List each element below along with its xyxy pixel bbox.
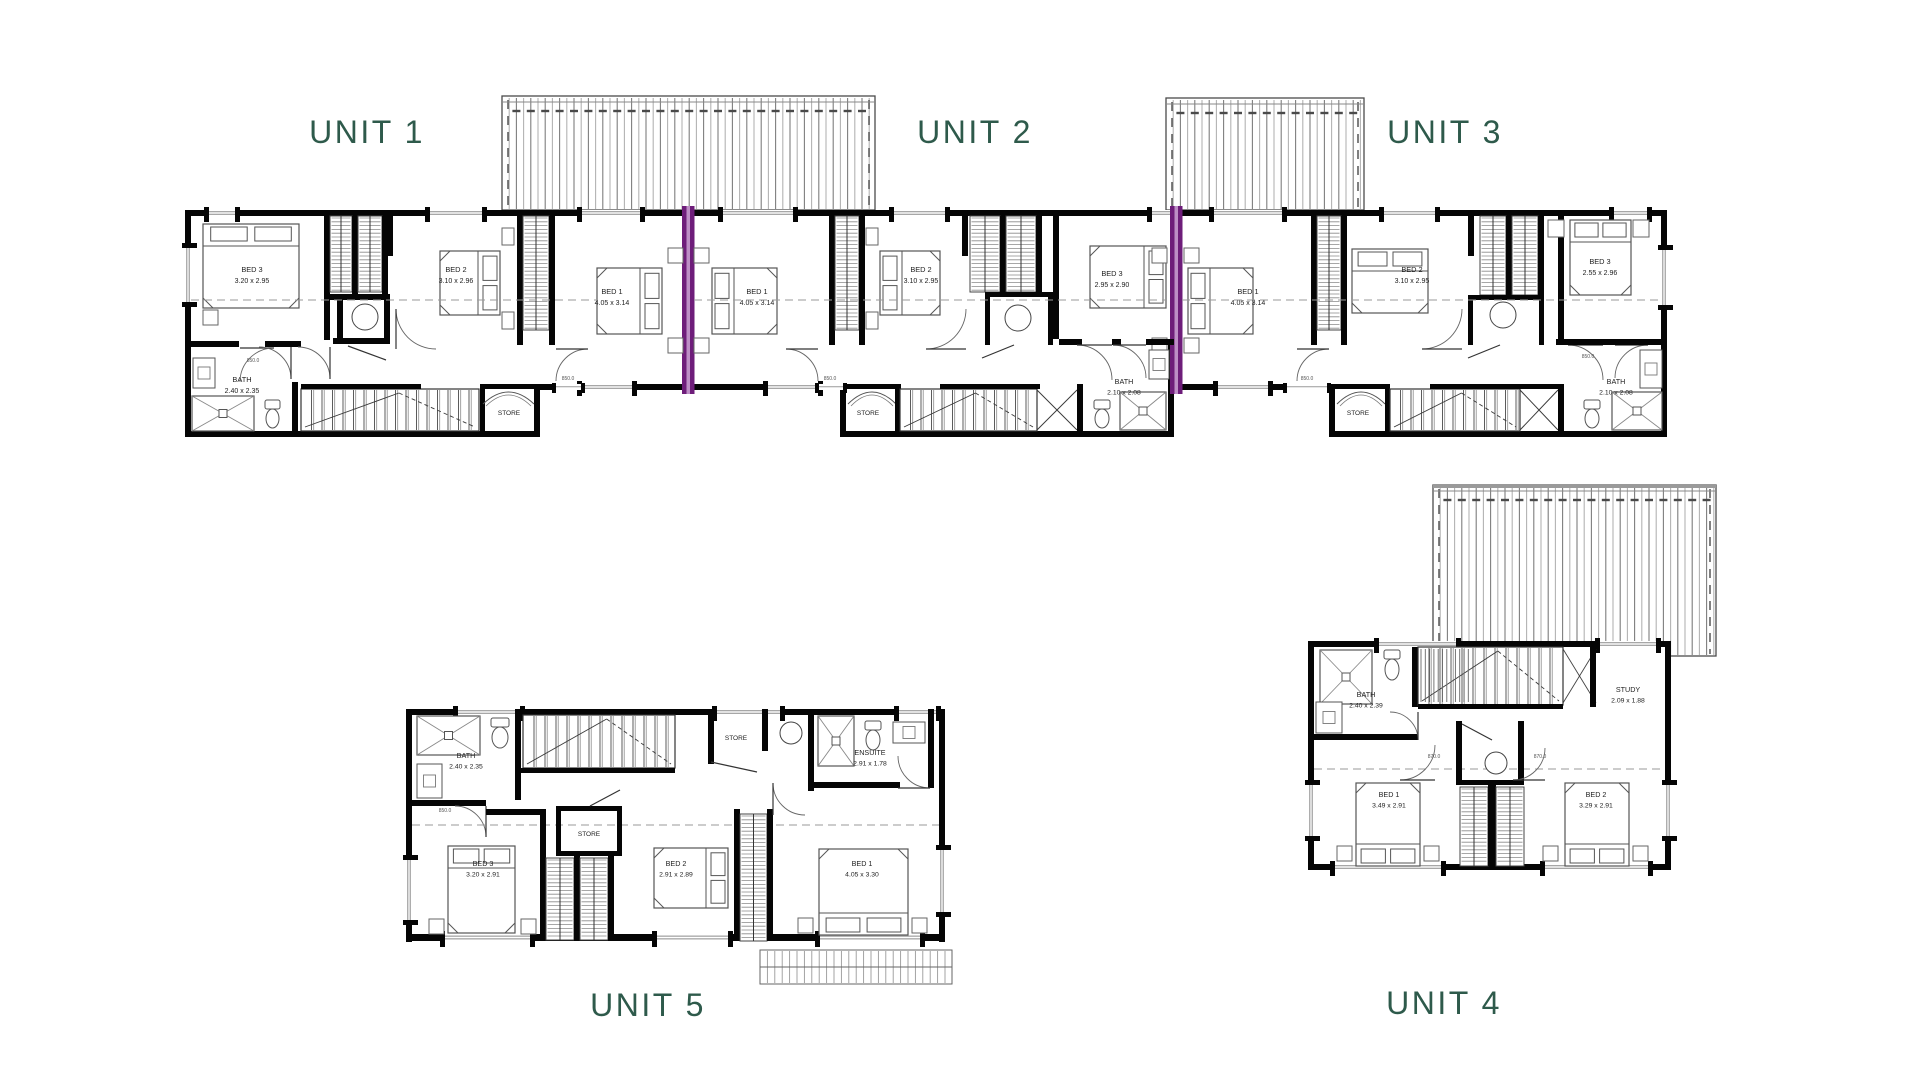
svg-text:BED 1: BED 1 <box>1237 287 1258 296</box>
svg-text:3.20 x 2.95: 3.20 x 2.95 <box>235 278 270 285</box>
svg-text:BED 1: BED 1 <box>852 859 873 868</box>
svg-text:STORE: STORE <box>1347 410 1370 417</box>
svg-text:BED 1: BED 1 <box>746 287 767 296</box>
svg-text:850.0: 850.0 <box>1301 376 1314 382</box>
svg-text:2.10 x 2.08: 2.10 x 2.08 <box>1599 390 1633 397</box>
svg-text:2.09 x 1.88: 2.09 x 1.88 <box>1611 698 1645 705</box>
svg-text:BED 1: BED 1 <box>1379 790 1400 799</box>
svg-text:BED 3: BED 3 <box>1101 269 1122 278</box>
svg-text:BED 2: BED 2 <box>1401 265 1422 274</box>
svg-text:3.10 x 2.96: 3.10 x 2.96 <box>439 278 474 285</box>
svg-text:4.05 x 3.14: 4.05 x 3.14 <box>740 300 775 307</box>
svg-text:UNIT 1: UNIT 1 <box>309 114 425 150</box>
svg-text:850.0: 850.0 <box>824 376 837 382</box>
svg-text:STORE: STORE <box>578 831 601 838</box>
svg-text:850.0: 850.0 <box>1582 354 1595 360</box>
svg-text:870.0: 870.0 <box>1534 754 1547 760</box>
svg-text:2.40 x 2.35: 2.40 x 2.35 <box>225 388 260 395</box>
svg-text:4.05 x 3.14: 4.05 x 3.14 <box>595 300 630 307</box>
svg-text:STORE: STORE <box>498 410 521 417</box>
svg-text:BATH: BATH <box>1607 377 1626 386</box>
svg-text:BED 2: BED 2 <box>1586 790 1607 799</box>
svg-text:BED 2: BED 2 <box>666 859 687 868</box>
svg-text:UNIT 3: UNIT 3 <box>1387 114 1503 150</box>
svg-text:3.10 x 2.95: 3.10 x 2.95 <box>904 278 939 285</box>
svg-text:2.95 x 2.90: 2.95 x 2.90 <box>1095 282 1130 289</box>
svg-text:BATH: BATH <box>232 375 251 384</box>
svg-text:BED 3: BED 3 <box>473 859 494 868</box>
svg-text:BATH: BATH <box>1357 690 1376 699</box>
svg-text:3.20 x 2.91: 3.20 x 2.91 <box>466 872 500 879</box>
svg-text:STUDY: STUDY <box>1616 685 1641 694</box>
svg-text:BED 3: BED 3 <box>1589 257 1610 266</box>
svg-text:BED 2: BED 2 <box>910 265 931 274</box>
svg-text:850.0: 850.0 <box>562 376 575 382</box>
svg-text:ENSUITE: ENSUITE <box>854 748 885 757</box>
svg-text:4.05 x 3.30: 4.05 x 3.30 <box>845 872 879 879</box>
svg-text:UNIT 2: UNIT 2 <box>917 114 1033 150</box>
svg-text:2.40 x 2.39: 2.40 x 2.39 <box>1349 703 1383 710</box>
svg-text:2.91 x 1.78: 2.91 x 1.78 <box>853 761 887 768</box>
svg-text:870.0: 870.0 <box>1428 754 1441 760</box>
svg-text:4.05 x 3.14: 4.05 x 3.14 <box>1231 300 1266 307</box>
svg-text:2.40 x 2.35: 2.40 x 2.35 <box>449 764 483 771</box>
svg-text:2.91 x 2.89: 2.91 x 2.89 <box>659 872 693 879</box>
svg-text:BED 2: BED 2 <box>445 265 466 274</box>
svg-text:850.0: 850.0 <box>439 808 452 814</box>
svg-text:UNIT 5: UNIT 5 <box>590 987 706 1023</box>
svg-text:3.49 x 2.91: 3.49 x 2.91 <box>1372 803 1406 810</box>
svg-text:BED 3: BED 3 <box>241 265 262 274</box>
svg-text:BATH: BATH <box>1115 377 1134 386</box>
svg-text:3.29 x 2.91: 3.29 x 2.91 <box>1579 803 1613 810</box>
svg-text:UNIT 4: UNIT 4 <box>1386 985 1502 1021</box>
svg-text:STORE: STORE <box>725 735 748 742</box>
svg-text:STORE: STORE <box>857 410 880 417</box>
svg-text:2.55 x 2.96: 2.55 x 2.96 <box>1583 270 1618 277</box>
svg-text:BATH: BATH <box>457 751 476 760</box>
svg-text:2.10 x 2.08: 2.10 x 2.08 <box>1107 390 1141 397</box>
svg-text:BED 1: BED 1 <box>601 287 622 296</box>
svg-text:850.0: 850.0 <box>247 358 260 364</box>
svg-text:3.10 x 2.95: 3.10 x 2.95 <box>1395 278 1430 285</box>
